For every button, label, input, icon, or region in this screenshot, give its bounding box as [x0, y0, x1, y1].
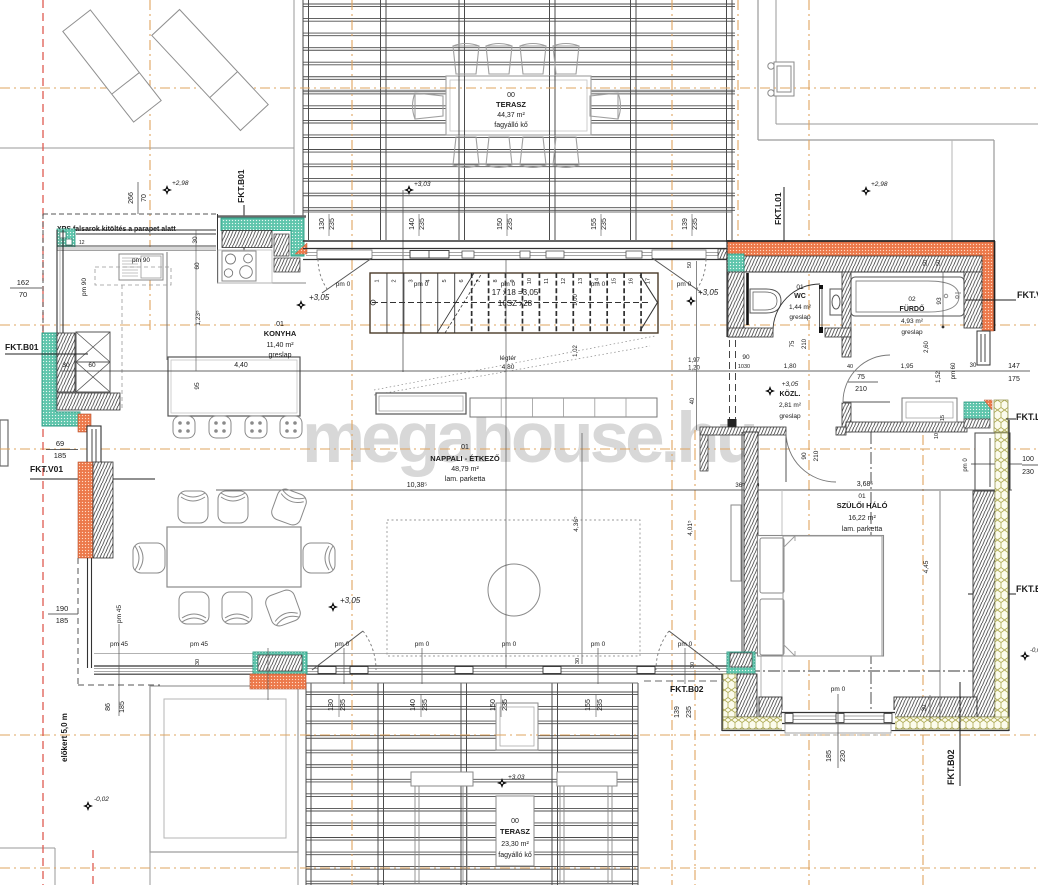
svg-text:02: 02	[908, 296, 916, 303]
svg-text:FKT.V01: FKT.V01	[30, 464, 63, 474]
svg-text:30: 30	[195, 659, 201, 665]
svg-text:130: 130	[328, 699, 335, 711]
svg-text:210: 210	[813, 450, 820, 461]
svg-text:01: 01	[461, 444, 469, 451]
svg-text:30: 30	[970, 363, 977, 369]
svg-text:14: 14	[595, 278, 601, 284]
svg-text:greslap: greslap	[901, 329, 923, 336]
svg-text:210: 210	[802, 338, 808, 349]
svg-text:WC: WC	[794, 293, 806, 300]
svg-text:FKT.B01: FKT.B01	[236, 169, 246, 203]
svg-text:4: 4	[425, 279, 431, 282]
svg-text:147: 147	[1008, 363, 1020, 370]
svg-text:50: 50	[687, 262, 693, 268]
svg-text:235: 235	[419, 218, 426, 230]
svg-text:235: 235	[692, 218, 699, 230]
svg-text:130: 130	[319, 218, 326, 230]
svg-text:pm 0: pm 0	[678, 641, 693, 648]
svg-text:FKT.L02: FKT.L02	[1016, 412, 1038, 422]
svg-text:235: 235	[329, 218, 336, 230]
svg-text:pm 45: pm 45	[190, 641, 208, 648]
svg-text:139: 139	[682, 218, 689, 230]
svg-text:lam. parketta: lam. parketta	[445, 476, 486, 483]
svg-text:3: 3	[408, 279, 414, 282]
svg-text:pm 0: pm 0	[591, 641, 606, 648]
svg-text:16,22 m²: 16,22 m²	[848, 515, 876, 522]
svg-text:FKT.B02: FKT.B02	[670, 684, 704, 694]
svg-text:40: 40	[690, 397, 696, 404]
svg-text:2,60: 2,60	[924, 341, 930, 353]
svg-text:FKT.B01: FKT.B01	[5, 342, 39, 352]
svg-text:-0,0: -0,0	[1030, 648, 1038, 654]
svg-text:10: 10	[934, 433, 940, 439]
svg-text:FÜRDŐ: FÜRDŐ	[900, 304, 925, 313]
svg-text:4,36⁵: 4,36⁵	[573, 516, 580, 532]
svg-text:pm 45: pm 45	[116, 605, 123, 623]
svg-text:10,38⁵: 10,38⁵	[407, 482, 428, 489]
svg-text:pm 90: pm 90	[81, 278, 88, 296]
svg-text:+2,98: +2,98	[172, 180, 189, 187]
svg-text:16: 16	[629, 278, 635, 284]
svg-text:TERASZ: TERASZ	[496, 100, 526, 109]
svg-text:9: 9	[510, 279, 516, 282]
svg-text:FKT.V02: FKT.V02	[1017, 290, 1038, 300]
svg-text:16SZ x28: 16SZ x28	[498, 299, 533, 308]
svg-text:fagyálló kő: fagyálló kő	[498, 852, 532, 859]
svg-text:4,40: 4,40	[234, 362, 248, 369]
svg-text:140: 140	[410, 699, 417, 711]
svg-text:FKT.B02: FKT.B02	[1016, 584, 1038, 594]
svg-text:266: 266	[128, 192, 135, 204]
svg-text:1,02: 1,02	[573, 345, 579, 357]
svg-text:185: 185	[119, 701, 126, 713]
svg-text:greslap: greslap	[779, 413, 801, 420]
svg-text:60: 60	[194, 262, 201, 270]
svg-text:90: 90	[742, 354, 750, 361]
svg-text:1030: 1030	[738, 364, 750, 370]
svg-text:86: 86	[105, 703, 112, 711]
svg-text:235: 235	[502, 699, 509, 711]
svg-text:13: 13	[578, 278, 584, 284]
svg-text:155: 155	[591, 218, 598, 230]
svg-text:30: 30	[690, 662, 696, 668]
svg-text:+3,05: +3,05	[340, 596, 361, 605]
svg-text:230: 230	[1022, 469, 1034, 476]
svg-text:4,80: 4,80	[502, 364, 515, 371]
svg-text:10: 10	[527, 278, 533, 284]
svg-text:185: 185	[54, 451, 67, 460]
svg-text:1,80: 1,80	[784, 363, 797, 370]
svg-text:75: 75	[790, 340, 796, 347]
svg-text:1,95: 1,95	[901, 363, 914, 370]
svg-text:pm 90: pm 90	[132, 257, 150, 264]
svg-text:-0,02: -0,02	[94, 796, 109, 803]
svg-text:150: 150	[497, 218, 504, 230]
svg-text:12: 12	[561, 278, 567, 284]
svg-text:30: 30	[192, 236, 199, 244]
svg-text:+3,03: +3,03	[414, 181, 431, 188]
svg-text:235: 235	[422, 699, 429, 711]
svg-text:01: 01	[276, 321, 284, 328]
svg-text:1,44 m²: 1,44 m²	[789, 304, 812, 311]
svg-text:1: 1	[374, 279, 380, 282]
svg-text:pm 0: pm 0	[335, 641, 350, 648]
svg-text:50: 50	[923, 260, 929, 266]
svg-text:30: 30	[575, 658, 581, 664]
svg-text:100: 100	[1022, 456, 1034, 463]
svg-text:50: 50	[936, 260, 942, 266]
svg-text:30: 30	[922, 704, 928, 711]
svg-text:pm 0: pm 0	[677, 281, 692, 288]
svg-text:17: 17	[646, 278, 652, 284]
svg-text:75: 75	[857, 374, 865, 381]
svg-text:140: 140	[409, 218, 416, 230]
svg-text:139: 139	[674, 706, 681, 718]
svg-text:00: 00	[507, 92, 515, 99]
svg-text:+3,05: +3,05	[698, 288, 719, 297]
svg-text:175: 175	[1008, 376, 1020, 383]
svg-text:+2,98: +2,98	[871, 181, 888, 188]
svg-text:155: 155	[585, 699, 592, 711]
svg-text:185: 185	[826, 750, 833, 762]
svg-text:69: 69	[56, 439, 64, 448]
svg-text:235: 235	[686, 706, 693, 718]
svg-text:1,52: 1,52	[936, 371, 942, 383]
svg-text:11: 11	[544, 278, 550, 284]
svg-text:00: 00	[511, 818, 519, 825]
svg-text:4,01⁵: 4,01⁵	[687, 520, 694, 536]
svg-text:NAPPALI - ÉTKEZŐ: NAPPALI - ÉTKEZŐ	[430, 454, 500, 463]
svg-text:lam. parketta: lam. parketta	[842, 526, 883, 533]
svg-text:95: 95	[194, 382, 201, 390]
svg-text:TERASZ: TERASZ	[500, 827, 530, 836]
svg-text:44,37 m²: 44,37 m²	[497, 112, 525, 119]
svg-text:2,81 m²: 2,81 m²	[779, 402, 802, 409]
svg-text:70: 70	[19, 290, 27, 299]
svg-text:pm 0: pm 0	[415, 641, 430, 648]
svg-text:KONYHA: KONYHA	[264, 329, 297, 338]
svg-text:pm 0: pm 0	[336, 281, 351, 288]
svg-text:15: 15	[940, 415, 946, 421]
svg-text:93: 93	[936, 297, 943, 305]
svg-text:8: 8	[493, 279, 499, 282]
svg-text:23,30 m²: 23,30 m²	[501, 841, 529, 848]
svg-text:48,79 m²: 48,79 m²	[451, 466, 479, 473]
svg-text:185: 185	[56, 616, 69, 625]
svg-text:4,93 m²: 4,93 m²	[901, 318, 924, 325]
svg-text:235: 235	[601, 218, 608, 230]
svg-text:210: 210	[855, 386, 867, 393]
svg-text:40: 40	[847, 364, 853, 370]
svg-text:70: 70	[141, 194, 148, 202]
svg-text:90: 90	[801, 452, 808, 460]
svg-text:235: 235	[340, 699, 347, 711]
svg-text:légtér: légtér	[500, 355, 517, 362]
svg-text:1,00: 1,00	[573, 294, 579, 306]
svg-text:3,68⁵: 3,68⁵	[857, 481, 874, 488]
svg-text:162: 162	[17, 278, 30, 287]
svg-text:17 x18 =3,05: 17 x18 =3,05	[492, 288, 539, 297]
svg-text:11,40 m²: 11,40 m²	[266, 342, 294, 349]
svg-text:FKT.B02: FKT.B02	[946, 749, 956, 785]
svg-text:12: 12	[79, 240, 85, 246]
svg-text:pm 0: pm 0	[963, 458, 969, 472]
svg-text:6: 6	[459, 279, 465, 282]
svg-text:2: 2	[391, 279, 397, 282]
svg-text:235: 235	[507, 218, 514, 230]
svg-text:greslap: greslap	[269, 352, 292, 359]
svg-text:pm 0: pm 0	[502, 641, 517, 648]
svg-text:1,20: 1,20	[688, 366, 700, 372]
svg-text:FKT.L01: FKT.L01	[773, 192, 783, 225]
svg-text:+3,05: +3,05	[309, 293, 330, 302]
svg-text:190: 190	[56, 604, 69, 613]
svg-text:30: 30	[62, 362, 70, 369]
svg-text:01: 01	[858, 493, 866, 500]
svg-text:60: 60	[88, 362, 96, 369]
svg-text:4,45: 4,45	[923, 560, 930, 573]
svg-text:+3,03: +3,03	[508, 774, 525, 781]
svg-text:pm 60: pm 60	[951, 362, 957, 379]
svg-text:150: 150	[490, 699, 497, 711]
svg-text:5: 5	[442, 279, 448, 282]
svg-text:SZÜLŐI HÁLÓ: SZÜLŐI HÁLÓ	[837, 501, 888, 510]
svg-text:pm 0: pm 0	[831, 686, 846, 693]
svg-text:előkert 5,0 m: előkert 5,0 m	[60, 713, 69, 762]
svg-text:1,97: 1,97	[688, 358, 700, 364]
svg-text:+3,05: +3,05	[782, 381, 799, 388]
svg-text:230: 230	[840, 750, 847, 762]
svg-text:KÖZL.: KÖZL.	[780, 389, 801, 398]
svg-text:235: 235	[597, 699, 604, 711]
svg-text:15: 15	[612, 278, 618, 284]
svg-text:greslap: greslap	[789, 314, 811, 321]
svg-text:fagyálló kő: fagyálló kő	[494, 122, 528, 129]
